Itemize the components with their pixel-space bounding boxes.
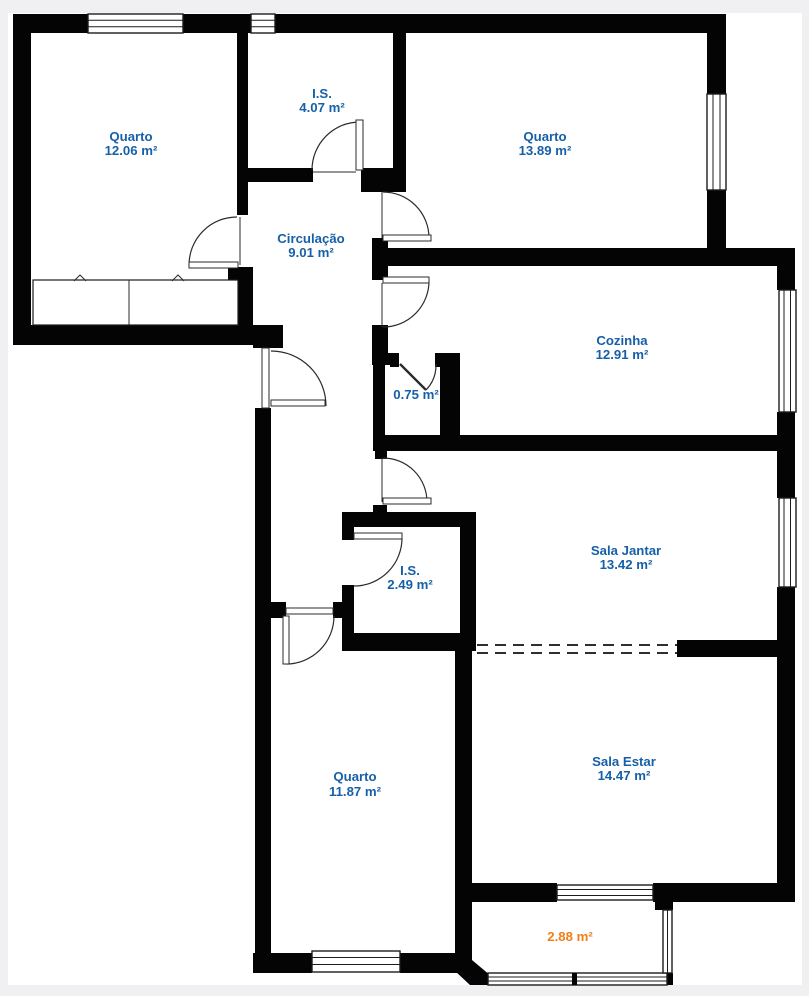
room-name: Quarto <box>109 129 152 144</box>
wall-segment <box>333 602 345 618</box>
window-varanda-right-glazing <box>663 910 672 973</box>
wall-segment <box>255 408 271 973</box>
room-label-cozinha: Cozinha 12.91 m² <box>596 333 649 362</box>
wall-segment <box>390 353 399 367</box>
wall-segment <box>373 505 387 513</box>
wall-segment <box>655 885 673 910</box>
wall-segment <box>342 633 476 651</box>
room-name: Sala Estar <box>592 754 656 769</box>
room-label-quarto-1: Quarto 12.06 m² <box>105 129 158 158</box>
wall-segment <box>707 33 726 94</box>
room-name: Circulação <box>277 231 344 246</box>
room-name: Quarto <box>523 129 566 144</box>
wall-segment <box>342 527 354 540</box>
window-cozinha-right <box>779 290 796 412</box>
room-area: 12.91 m² <box>596 347 649 362</box>
wall-segment <box>372 238 388 280</box>
wall-segment <box>777 587 795 902</box>
room-area: 2.49 m² <box>387 577 433 592</box>
room-name: I.S. <box>400 563 420 578</box>
wardrobe <box>33 275 238 325</box>
window-varanda-bottom-glazing <box>488 973 667 985</box>
wall-segment <box>237 33 248 215</box>
wall-segment <box>400 953 472 973</box>
room-area: 2.88 m² <box>547 929 593 944</box>
room-area: 13.89 m² <box>519 143 572 158</box>
floorplan-drawing: Quarto 12.06 m² I.S. 4.07 m² Quarto 13.8… <box>0 0 809 996</box>
wall-segment <box>342 512 476 527</box>
wall-segment <box>393 33 406 192</box>
room-label-sala-jantar: Sala Jantar 13.42 m² <box>591 543 661 572</box>
room-area: 11.87 m² <box>329 784 382 799</box>
wall-segment <box>373 435 795 451</box>
wall-segment <box>677 640 777 657</box>
wall-segment <box>460 512 476 651</box>
window-quarto-1-top <box>88 14 183 33</box>
wall-segment <box>237 168 313 182</box>
room-label-quarto-2: Quarto 13.89 m² <box>519 129 572 158</box>
wall-segment <box>440 353 460 436</box>
room-name: Cozinha <box>596 333 648 348</box>
room-area: 9.01 m² <box>288 245 334 260</box>
room-name: Quarto <box>333 769 376 784</box>
room-label-sala-estar: Sala Estar 14.47 m² <box>592 754 656 783</box>
room-label-varanda: 2.88 m² <box>547 929 593 944</box>
window-quarto-3-bottom <box>312 951 400 972</box>
room-area: 12.06 m² <box>105 143 158 158</box>
floorplan-page: Quarto 12.06 m² I.S. 4.07 m² Quarto 13.8… <box>0 0 809 996</box>
room-area: 4.07 m² <box>299 100 345 115</box>
wall-segment <box>253 325 283 348</box>
room-label-quarto-3: Quarto 11.87 m² <box>329 769 382 799</box>
room-name: Sala Jantar <box>591 543 661 558</box>
wall-segment <box>373 353 385 436</box>
room-area: 14.47 m² <box>598 768 651 783</box>
wall-segment <box>777 248 795 290</box>
wall-segment <box>467 883 557 902</box>
window-is-1-top <box>251 14 275 33</box>
wall-segment <box>777 412 795 498</box>
room-name: I.S. <box>312 86 332 101</box>
wall-segment <box>253 953 312 973</box>
wall-segment <box>455 651 472 961</box>
wall-segment <box>653 883 795 902</box>
wall-segment <box>13 14 31 345</box>
window-quarto-2-right <box>707 94 726 190</box>
window-sala-estar-bottom <box>557 885 653 900</box>
room-label-despensa: 0.75 m² <box>393 387 439 402</box>
room-area: 0.75 m² <box>393 387 439 402</box>
window-sala-jantar-right <box>779 498 796 587</box>
room-area: 13.42 m² <box>600 557 653 572</box>
wall-segment <box>383 248 795 266</box>
